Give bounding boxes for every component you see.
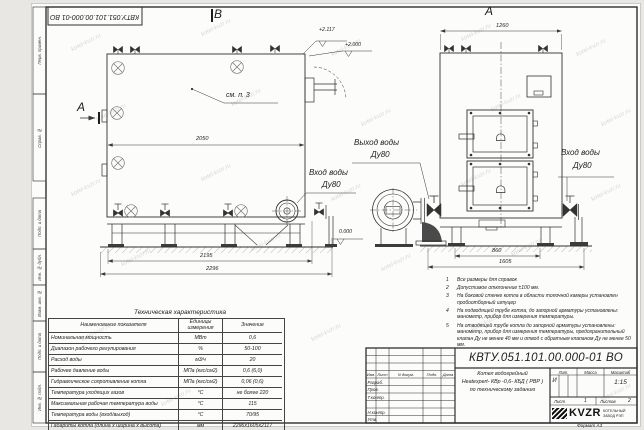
- tech-row-name: Рабочее давление воды: [49, 366, 179, 377]
- margin-box-podp-data-1: Подп. и дата: [33, 198, 46, 249]
- furnace-door-lower: [459, 161, 538, 211]
- tech-row-unit: °С: [179, 388, 223, 399]
- handhole-icon: [235, 205, 248, 218]
- tech-row-name: Гидравлическое сопротивление котла: [49, 377, 179, 388]
- valve-icon: [271, 46, 280, 54]
- inlet-left-label-line2: Ду80: [322, 181, 341, 189]
- margin-box-inv-podl: Инв. № подл.: [33, 372, 46, 423]
- tech-row-value: 0,06 (0,6): [223, 377, 282, 388]
- door-lock-icon: [497, 134, 505, 141]
- tb-sheets-label: Листов: [600, 399, 616, 404]
- valve-icon: [114, 47, 123, 55]
- tb-sheets-value: 2: [628, 398, 631, 404]
- tb-row-prov: Пров.: [368, 387, 379, 392]
- leader-lines: [191, 41, 614, 245]
- tech-row-value: 2296х1605х2117: [223, 421, 282, 430]
- dim-1260: 1260: [496, 24, 508, 30]
- note-item: 2Допустимое отклонение ±100 мм.: [446, 285, 636, 292]
- note-number: 4: [446, 308, 454, 321]
- tb-scale-label: Масштаб: [604, 370, 637, 375]
- note-number: 5: [446, 323, 454, 349]
- description-line: по техническому заданию: [457, 386, 548, 394]
- furnace-door-upper: [459, 110, 538, 158]
- dim-1605: 1605: [499, 260, 511, 266]
- tb-scale-value: 1:15: [604, 379, 637, 386]
- tech-row-value: 20: [223, 355, 282, 366]
- tech-table: Наименование показателя Единицы измерени…: [48, 318, 285, 430]
- tb-sheet-label: Лист: [554, 399, 565, 404]
- top-stamp-text: КВТУ.051.101.00.000-01 ВО: [50, 13, 139, 20]
- note-text: На подводящей трубе котла, до запорной а…: [457, 308, 636, 321]
- tb-lit-value: И: [550, 378, 559, 384]
- tb-mass-label: Масса: [577, 370, 604, 375]
- note-text: На боковой стенке котла в области топочн…: [457, 293, 636, 306]
- margin-label: Подп. и дата: [37, 333, 42, 360]
- tech-row-unit: МПа (кгс/см2): [179, 377, 223, 388]
- margin-box-inv-dubl: Инв. № дубл.: [33, 249, 46, 285]
- boiler-front-view: [420, 42, 592, 252]
- tech-row-unit: °С: [179, 399, 223, 410]
- margin-box-sprav-no: Справ. №: [33, 94, 46, 181]
- margin-label: Справ. №: [37, 128, 42, 148]
- description-line: Heatexpert- КВр -0,6- КБД ( РВР ): [457, 378, 548, 386]
- elev-mark-2000: +2.000: [345, 43, 361, 48]
- note-item: 1Все размеры для справок: [446, 277, 636, 284]
- handhole-icon: [112, 62, 125, 75]
- handhole-icon: [111, 107, 124, 120]
- fan-blower: [370, 188, 446, 247]
- tb-header-list: Лист: [376, 372, 389, 377]
- tech-row-value: 115: [223, 399, 282, 410]
- elev-mark-zero: 0.000: [339, 230, 352, 235]
- tech-row-name: Габариты котла (длина х ширина х высота): [49, 421, 179, 430]
- tech-col-header: Наименование показателя: [49, 319, 179, 333]
- valve-icon: [462, 46, 471, 54]
- tb-header-ndokum: N докум.: [389, 372, 423, 377]
- water-outlet-valve: [427, 196, 441, 217]
- inlet-pipe-right: [563, 196, 588, 246]
- handhole-icon: [231, 61, 244, 74]
- view-marks: [80, 9, 212, 124]
- note-number: 2: [446, 285, 454, 292]
- tb-header-data: Дата: [441, 372, 455, 377]
- drain-valve-icon: [224, 204, 233, 216]
- format-label: Формат А3: [577, 424, 602, 429]
- tb-row-tkontr: Т.контр.: [368, 395, 385, 400]
- description-line: Котел водогрейный: [457, 370, 548, 378]
- logo-flag-icon: [552, 408, 567, 419]
- margin-label: Подп. и дата: [37, 210, 42, 237]
- valve-icon: [539, 46, 548, 54]
- tech-row-value: 0,6 (6,0): [223, 366, 282, 377]
- notes-list: 1Все размеры для справок 2Допустимое отк…: [446, 277, 636, 350]
- margin-label: Инв. № дубл.: [37, 254, 42, 281]
- door-lock-icon: [497, 186, 505, 193]
- note-item: 3На боковой стенке котла в области топоч…: [446, 293, 636, 306]
- boiler-side-view: [100, 46, 346, 254]
- inlet-right-label-line2: Ду80: [573, 162, 592, 170]
- dim-2195: 2195: [200, 254, 212, 260]
- tech-row-value: 0,6: [223, 333, 282, 344]
- doc-number: КВТУ.051.101.00.000-01 ВО: [455, 348, 637, 368]
- tb-row-razrab: Разраб.: [368, 380, 384, 385]
- note-text: Все размеры для справок: [457, 277, 636, 284]
- door-bolts: [470, 112, 531, 210]
- handhole-icon: [125, 205, 138, 218]
- tb-row-utv: Утв.: [368, 417, 378, 422]
- dimension-lines: [101, 31, 585, 277]
- tech-row-unit: м3/ч: [179, 355, 223, 366]
- tech-col-header: Единицы измерения: [179, 319, 223, 333]
- outlet-label-line2: Ду80: [371, 151, 390, 159]
- junction-box: [527, 76, 551, 97]
- tech-row-value: 50-100: [223, 344, 282, 355]
- note-number: 3: [446, 293, 454, 306]
- tech-row-name: Температура воды (вход/выход): [49, 410, 179, 421]
- drain-valve-icon: [161, 204, 170, 216]
- section-label-a: А: [77, 101, 85, 113]
- company-logo: KVZR КОТЕЛЬНЫЙ ЗАВОД РЭП: [552, 406, 635, 421]
- elev-mark-2117: +2.117: [319, 28, 335, 33]
- margin-box-vzam-inv: Взам. инв. №: [33, 285, 46, 321]
- tech-row-name: Максимальная рабочая температура воды: [49, 399, 179, 410]
- note-number: 1: [446, 277, 454, 284]
- tb-sheet-value: 1: [584, 398, 587, 404]
- valve-icon: [233, 47, 242, 55]
- note-item: 5На отводящей трубе котла до запорной ар…: [446, 323, 636, 349]
- company-name-line: ЗАВОД РЭП: [603, 414, 626, 418]
- note-item: 4На подводящей трубе котла, до запорной …: [446, 308, 636, 321]
- dim-860: 860: [492, 249, 501, 255]
- tech-row-value: не более 220: [223, 388, 282, 399]
- logo-word: KVZR: [569, 408, 601, 419]
- tech-table-title: Техническая характеристика: [115, 309, 245, 316]
- note-text: На отводящей трубе котла до запорной арм…: [457, 323, 636, 349]
- tech-row-unit: МПа (кгс/см2): [179, 366, 223, 377]
- see-note-ref: см. п. 3: [226, 92, 250, 99]
- tb-lit-label: Лит.: [550, 370, 577, 375]
- note-text: Допустимое отклонение ±100 мм.: [457, 285, 636, 292]
- company-name-line: КОТЕЛЬНЫЙ: [603, 409, 626, 413]
- tech-row-name: Температура уходящих газов: [49, 388, 179, 399]
- top-stamp-box: КВТУ.051.101.00.000-01 ВО: [48, 7, 142, 25]
- pipe-elbow: [422, 222, 442, 242]
- valve-icon: [445, 46, 454, 54]
- tech-col-header: Значение: [223, 319, 282, 333]
- tech-row-value: 70/95: [223, 410, 282, 421]
- handhole-icon: [112, 157, 125, 170]
- tech-row-name: Номинальная мощность: [49, 333, 179, 344]
- outlet-valve-icon: [315, 203, 324, 215]
- drain-valve-icon: [114, 204, 123, 216]
- dim-2296: 2296: [206, 267, 218, 273]
- margin-box-podp-data-2: Подп. и дата: [33, 321, 46, 372]
- outlet-label-line1: Выход воды: [354, 139, 399, 147]
- inlet-left-label-line1: Вход воды: [309, 169, 348, 177]
- margin-label: Взам. инв. №: [37, 290, 42, 317]
- valve-icon: [131, 47, 140, 55]
- margin-label: Перв. примен.: [37, 36, 42, 65]
- inlet-right-label-line1: Вход воды: [561, 149, 600, 157]
- tech-row-name: Расход воды: [49, 355, 179, 366]
- margin-box-perv-primen: Перв. примен.: [33, 7, 46, 94]
- tech-row-name: Диапазон рабочего регулирования: [49, 344, 179, 355]
- tech-row-unit: МВт: [179, 333, 223, 344]
- dim-2050: 2050: [196, 137, 208, 143]
- tech-row-unit: мм: [179, 421, 223, 430]
- tb-header-izm: Изм.: [366, 372, 376, 377]
- tech-row-unit: °С: [179, 410, 223, 421]
- margin-label: Инв. № подл.: [37, 384, 42, 411]
- tb-header-podp: Подп.: [423, 372, 441, 377]
- drawing-description: Котел водогрейный Heatexpert- КВр -0,6- …: [457, 370, 548, 395]
- tech-row-unit: %: [179, 344, 223, 355]
- tb-row-nkontr: Н.контр.: [368, 410, 386, 415]
- boiler-drawing-scan: kotel-kvzr.ru kotel-kvzr.ru kotel-kvzr.r…: [0, 0, 644, 430]
- view-label-a: А: [485, 5, 493, 17]
- view-label-b: В: [214, 8, 222, 20]
